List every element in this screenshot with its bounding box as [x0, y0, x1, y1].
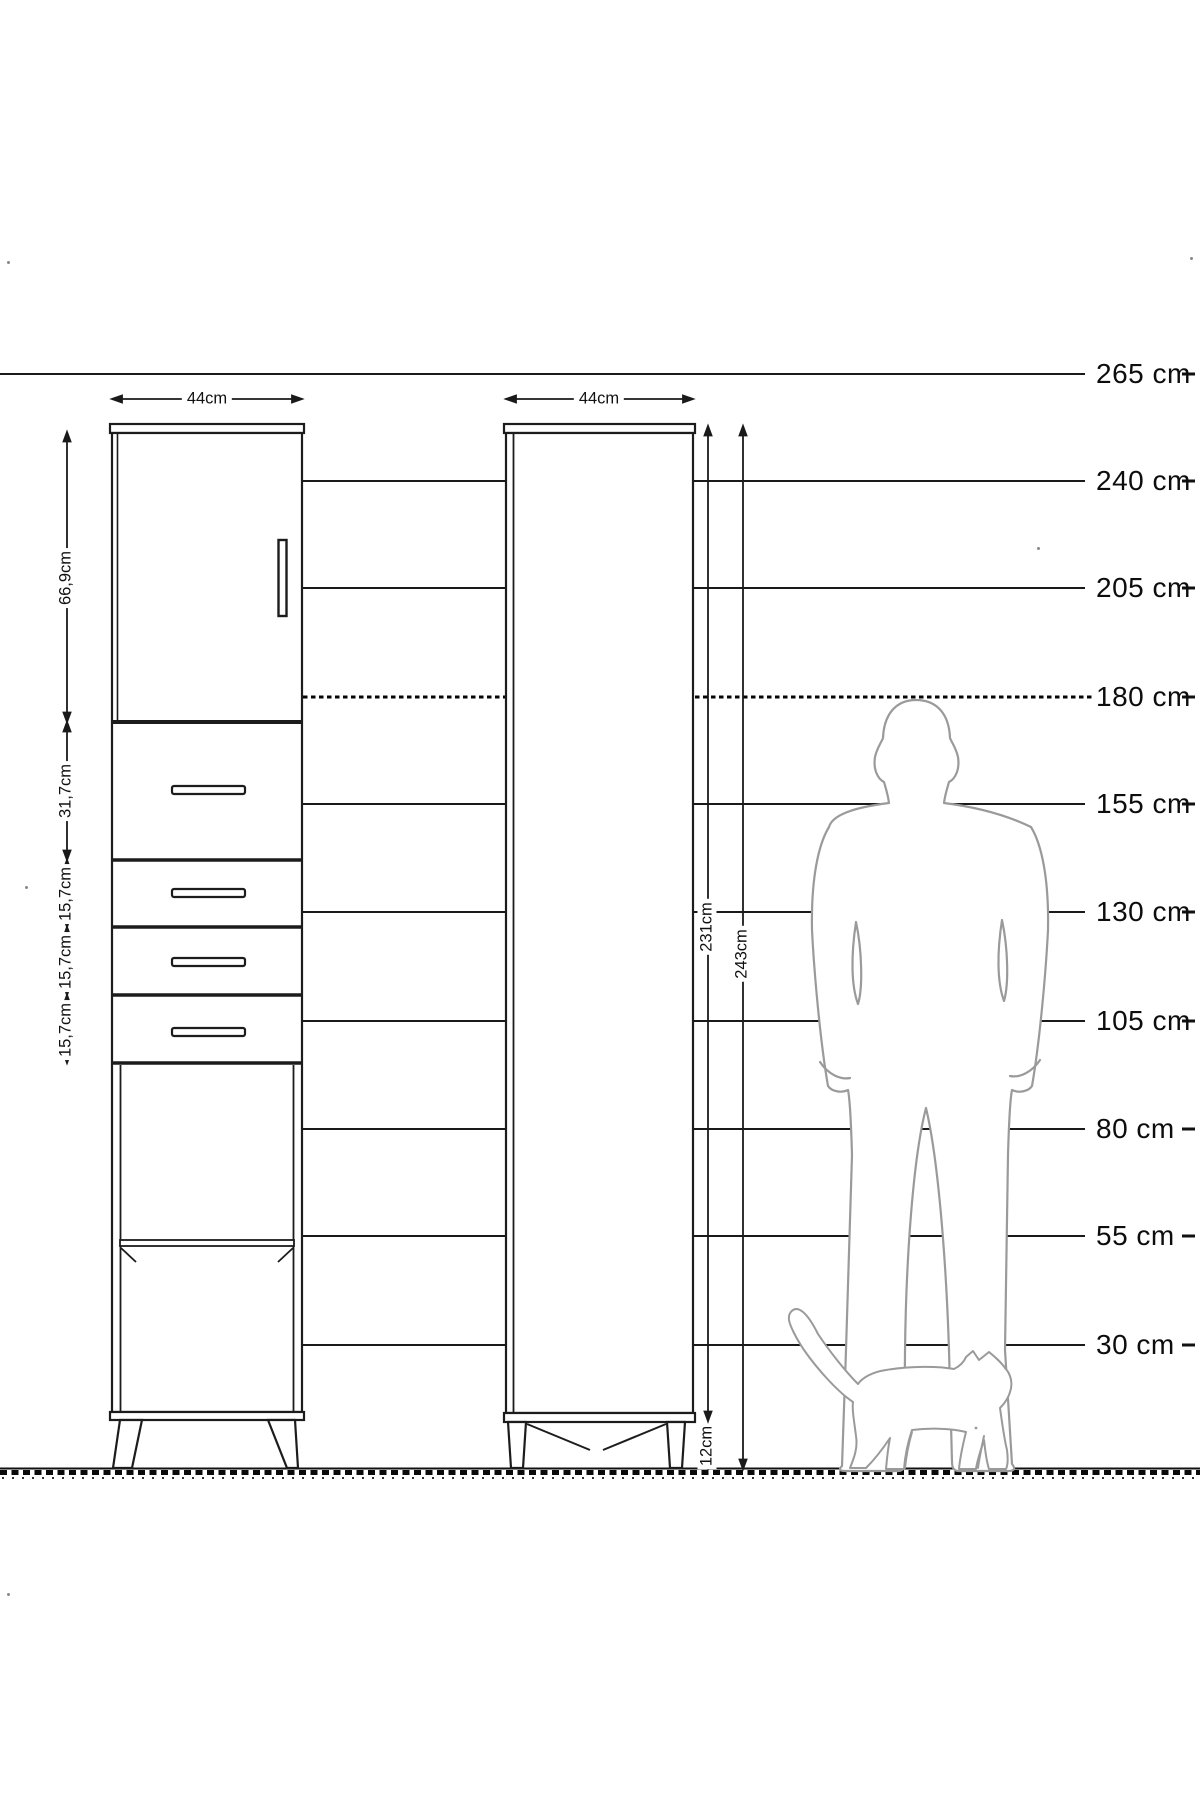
section-label-drawer2: 15,7cm: [57, 864, 76, 924]
speck: [7, 1593, 10, 1596]
speck: [1190, 257, 1193, 260]
scale-label-80: 80 cm: [1096, 1112, 1191, 1146]
left-cabinet-body: [112, 433, 302, 1412]
right-cabinet-bottom-board: [504, 1413, 695, 1422]
right-cabinet-leg-brace: [603, 1424, 666, 1450]
speck: [1037, 547, 1040, 550]
scale-label-130: 130 cm: [1096, 895, 1191, 929]
drawer-handle-2: [172, 889, 245, 897]
technical-drawing-canvas: 265 cm 240 cm 205 cm 180 cm 155 cm 130 c…: [0, 0, 1200, 1800]
door-handle: [279, 540, 287, 616]
section-label-drawer1: 31,7cm: [57, 761, 76, 821]
speck: [25, 886, 28, 889]
scale-label-55: 55 cm: [1096, 1219, 1191, 1253]
section-label-drawer4: 15,7cm: [57, 1000, 76, 1060]
right-cabinet-leg: [667, 1422, 685, 1468]
section-label-door: 66,9cm: [57, 548, 76, 608]
left-cabinet-leg: [113, 1420, 142, 1468]
scale-label-265: 265 cm: [1096, 357, 1191, 391]
scale-label-ticks: [1182, 373, 1195, 1347]
right-cabinet-leg: [508, 1422, 526, 1468]
drawer-handle-4: [172, 1028, 245, 1036]
right-cabinet-width-label: 44cm: [574, 390, 624, 409]
drawer-handle-3: [172, 958, 245, 966]
drawing-layer: [0, 0, 1200, 1800]
body-height-label: 231cm: [698, 899, 717, 955]
scale-label-155: 155 cm: [1096, 787, 1191, 821]
scale-label-205: 205 cm: [1096, 571, 1191, 605]
right-cabinet-leg-brace: [527, 1424, 590, 1450]
scale-label-180: 180 cm: [1096, 680, 1191, 714]
right-cabinet-body: [506, 433, 693, 1413]
left-cabinet-width-label: 44cm: [182, 390, 232, 409]
speck: [7, 261, 10, 264]
drawer-handle-1: [172, 786, 245, 794]
total-height-label: 243cm: [733, 926, 752, 982]
leg-height-label: 12cm: [698, 1423, 717, 1469]
right-cabinet-top-board: [504, 424, 695, 433]
scale-label-30: 30 cm: [1096, 1328, 1191, 1362]
ground-line: [0, 1469, 1200, 1479]
left-cabinet-leg: [268, 1420, 298, 1468]
left-cabinet-bottom-board: [110, 1412, 304, 1420]
scale-label-105: 105 cm: [1096, 1004, 1191, 1038]
left-cabinet-top-board: [110, 424, 304, 433]
left-cabinet: [110, 424, 304, 1468]
right-cabinet: [504, 424, 695, 1468]
man-silhouette: [812, 700, 1048, 1471]
section-label-drawer3: 15,7cm: [57, 932, 76, 992]
scale-label-240: 240 cm: [1096, 464, 1191, 498]
